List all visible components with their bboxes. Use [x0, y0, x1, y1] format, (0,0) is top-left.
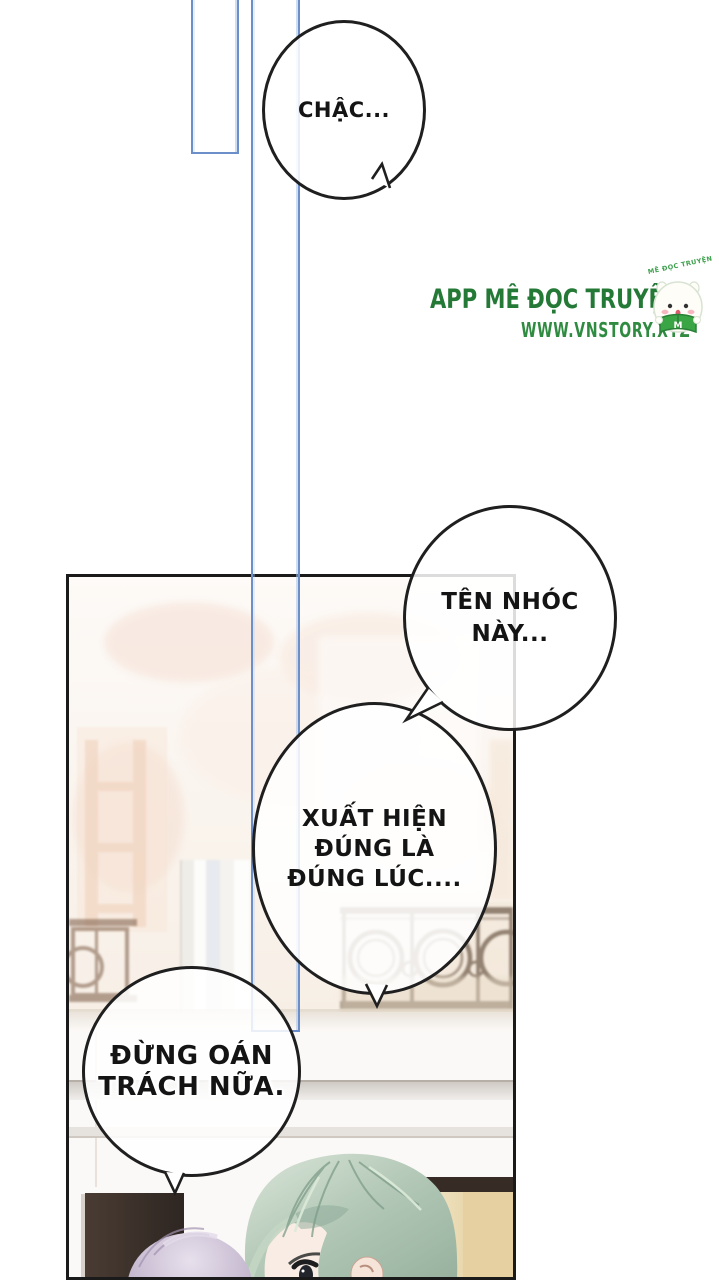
speech-bubble-dung-oan: ĐỪNG OÁN TRÁCH NỮA. — [82, 966, 301, 1177]
bubble-tail-ten-nhoc — [396, 680, 444, 728]
mascot-icon: M — [646, 280, 710, 338]
bubble-text: XUẤT HIỆN ĐÚNG LÀ ĐÚNG LÚC.... — [287, 804, 461, 894]
speech-bubble-xuat-hien: XUẤT HIỆN ĐÚNG LÀ ĐÚNG LÚC.... — [252, 702, 497, 995]
bubble-text: ĐỪNG OÁN TRÁCH NỮA. — [98, 1041, 285, 1103]
bubble-tail-xuat-hien — [360, 978, 394, 1012]
window-frame — [77, 727, 167, 932]
watermark-title: APP MÊ ĐỌC TRUYỆN — [430, 284, 680, 315]
panel-guide-rect-top — [191, 0, 239, 154]
bubble-tail-dung-oan — [158, 1168, 194, 1200]
comic-page: CHẬC... TÊN NHÓC NÀY... XUẤT HIỆN ĐÚNG L… — [0, 0, 719, 1280]
watermark-mascot: MÊ ĐỌC TRUYỆN M — [644, 266, 718, 352]
bubble-text: TÊN NHÓC NÀY... — [441, 586, 579, 650]
mascot-arc-text: MÊ ĐỌC TRUYỆN — [647, 254, 713, 275]
bubble-tail-chac — [358, 158, 406, 204]
book-letter: M — [674, 321, 683, 331]
bubble-text: CHẬC... — [298, 97, 390, 124]
watermark: APP MÊ ĐỌC TRUYỆN WWW.VNSTORY.XYZ MÊ ĐỌC… — [420, 255, 719, 355]
